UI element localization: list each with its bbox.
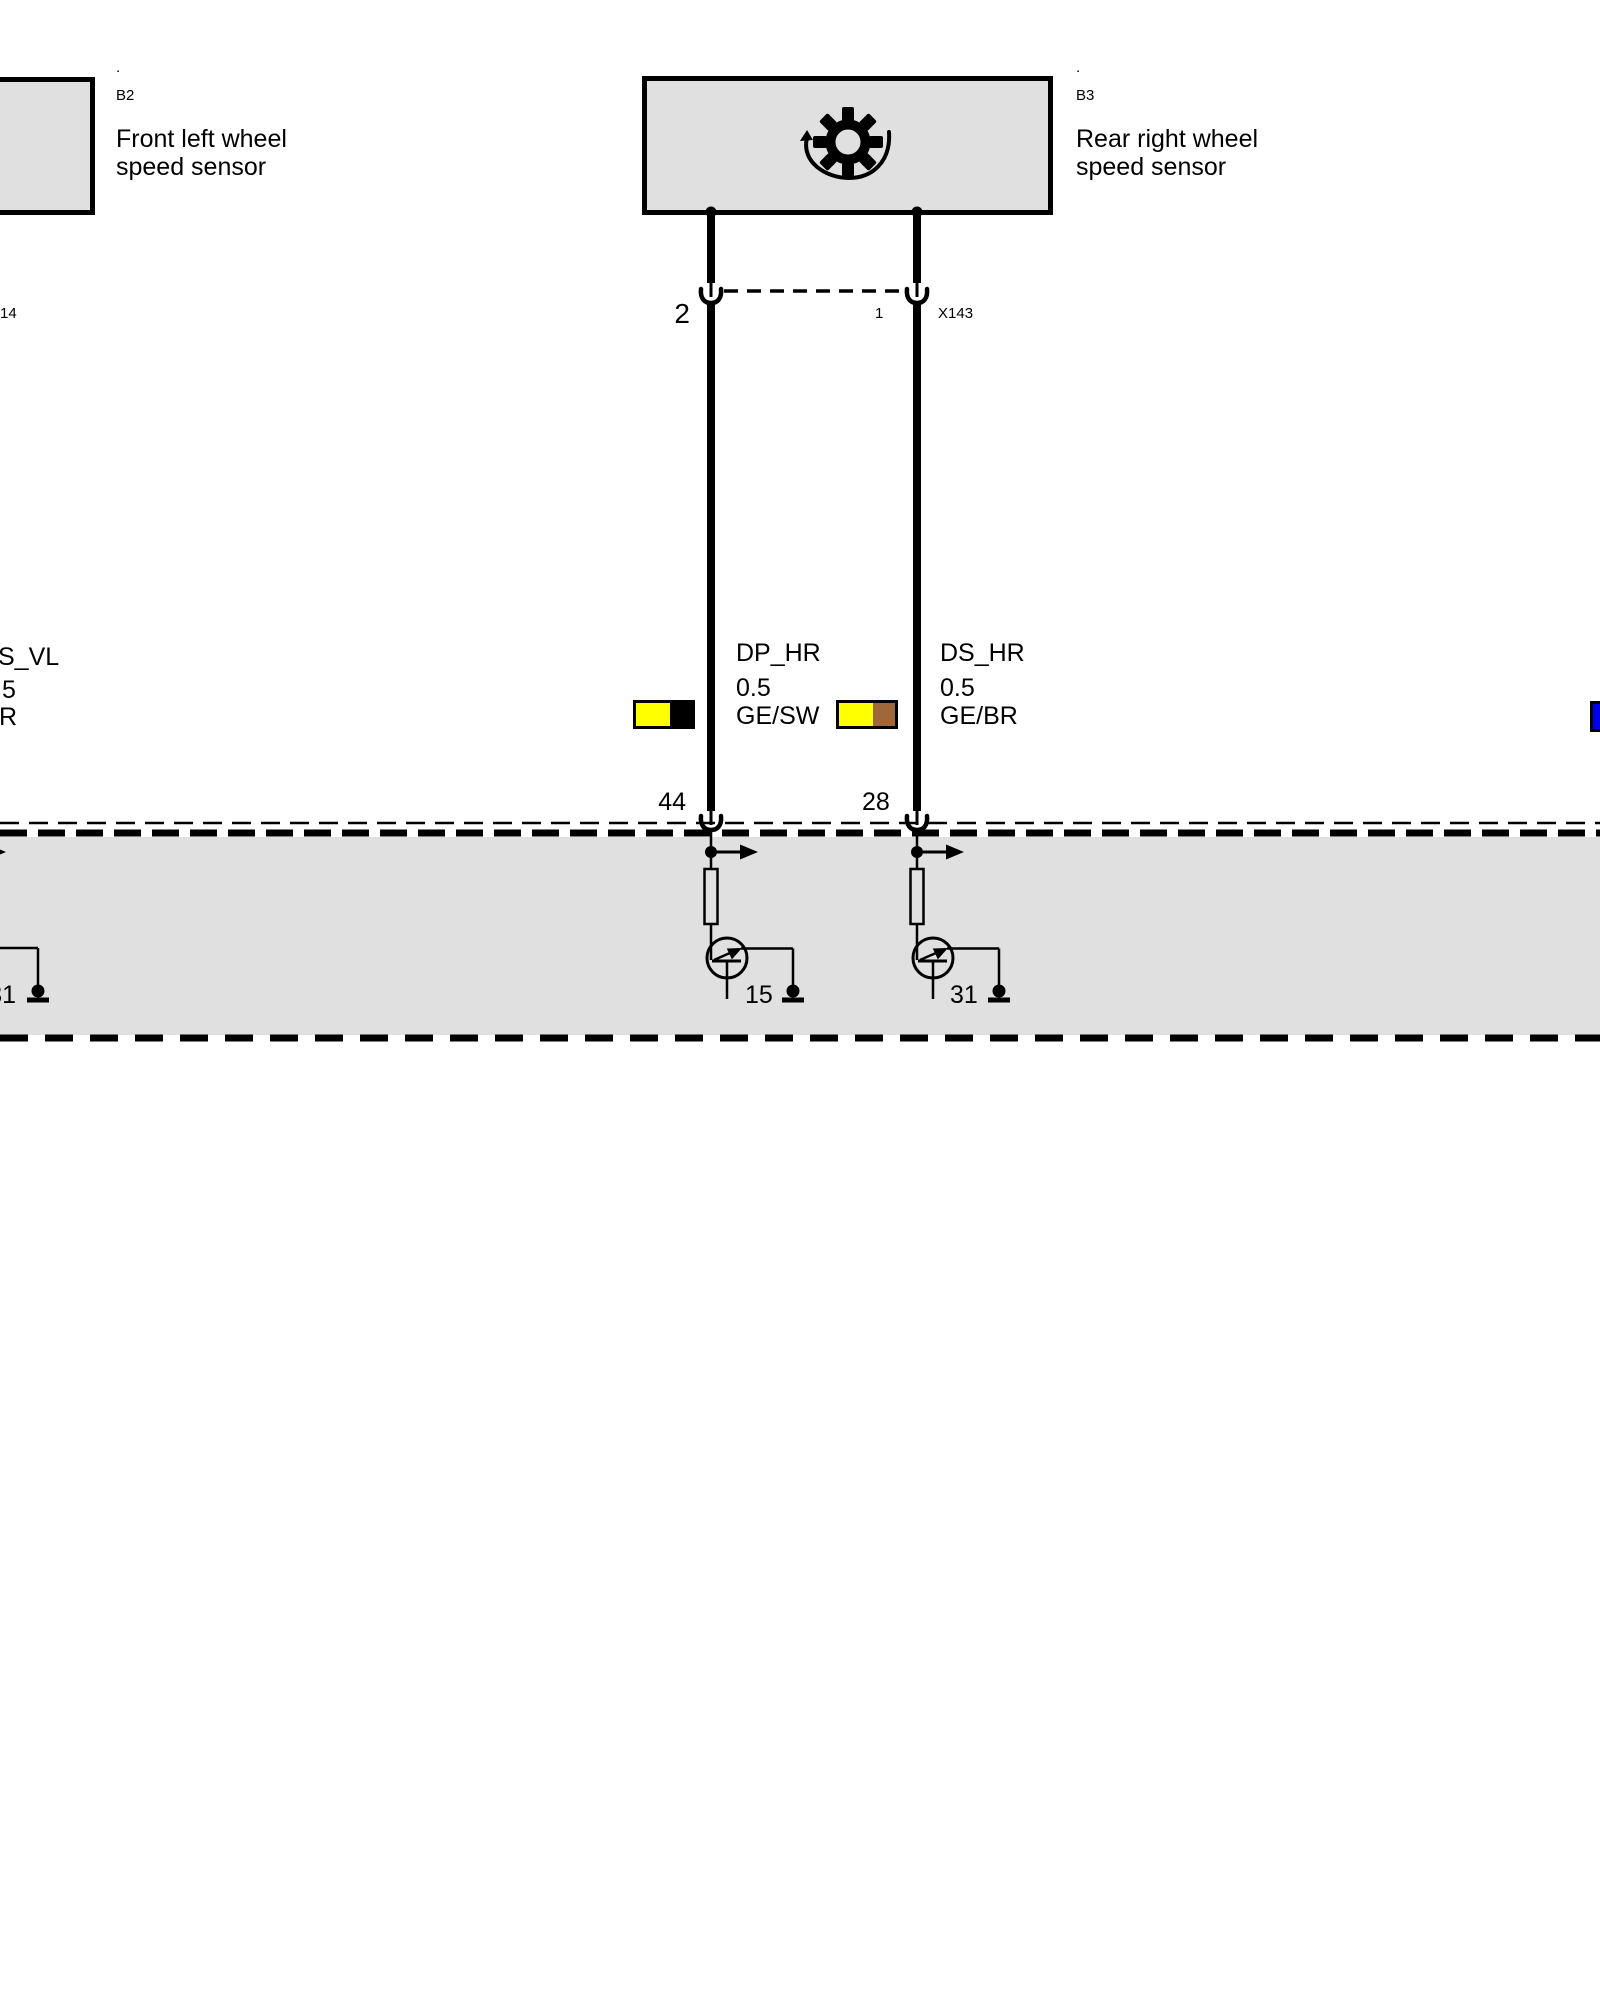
dp-hr-wire-color: GE/SW [736, 703, 819, 730]
ecu-pin-44: 44 [606, 789, 686, 816]
left-sensor-dot: . [116, 60, 120, 76]
dp-hr-wire-name: DP_HR [736, 640, 821, 667]
x143-pin-2: 2 [612, 299, 690, 329]
left-sensor-name-line2: speed sensor [116, 154, 266, 181]
dp-hr-wire-gauge: 0.5 [736, 675, 771, 702]
ground-bar-icon [782, 998, 804, 1003]
signal-direction-arrow [0, 845, 6, 860]
right-sensor-name-line2: speed sensor [1076, 154, 1226, 181]
signal-direction-arrow [740, 845, 758, 860]
wire-dp-hr [701, 207, 758, 961]
ground-dot [993, 985, 1006, 998]
x143-connector-label: X143 [938, 306, 973, 322]
internal-terminal-31-left: 31 [0, 982, 16, 1009]
left-edge-wire-color: R [0, 704, 17, 731]
resistor-symbol [911, 869, 924, 924]
left-edge-wire-gauge: 5 [2, 677, 16, 704]
right-sensor-dot: . [1076, 60, 1080, 76]
ds-hr-wire-name: DS_HR [940, 640, 1025, 667]
left-sensor-name-line1: Front left wheel [116, 126, 287, 153]
swatch-main-color [636, 703, 670, 726]
right-sensor-name-line1: Rear right wheel [1076, 126, 1258, 153]
wire-color-swatch-blue-cut [1590, 701, 1600, 732]
swatch-main-color [839, 703, 873, 726]
wiring-diagram-page: . B2 Front left wheel speed sensor . B3 … [0, 0, 1600, 2000]
ground-dot [32, 985, 45, 998]
ecu-pin-28: 28 [862, 789, 890, 816]
ground-bar-icon [988, 998, 1010, 1003]
ds-hr-wire-gauge: 0.5 [940, 675, 975, 702]
right-sensor-id: B3 [1076, 88, 1094, 104]
signal-direction-arrow [946, 845, 964, 860]
left-sensor-id: B2 [116, 88, 134, 104]
left-edge-wire-name: S_VL [0, 644, 59, 671]
internal-terminal-31: 31 [950, 982, 978, 1009]
resistor-symbol [705, 869, 718, 924]
x143-pin-1: 1 [875, 306, 883, 322]
left-edge-internal-circuit [0, 845, 49, 1003]
swatch-main-color [1593, 704, 1600, 729]
ds-hr-wire-color: GE/BR [940, 703, 1018, 730]
ground-dot [787, 985, 800, 998]
diagram-linework [0, 0, 1600, 2000]
left-edge-connector-label: 14 [0, 306, 17, 322]
internal-terminal-15: 15 [745, 982, 773, 1009]
wire-color-swatch-ge-sw [633, 700, 695, 729]
swatch-stripe-color [873, 703, 895, 726]
swatch-stripe-color [670, 703, 692, 726]
wire-color-swatch-ge-br [836, 700, 898, 729]
ground-bar-icon [27, 998, 49, 1003]
